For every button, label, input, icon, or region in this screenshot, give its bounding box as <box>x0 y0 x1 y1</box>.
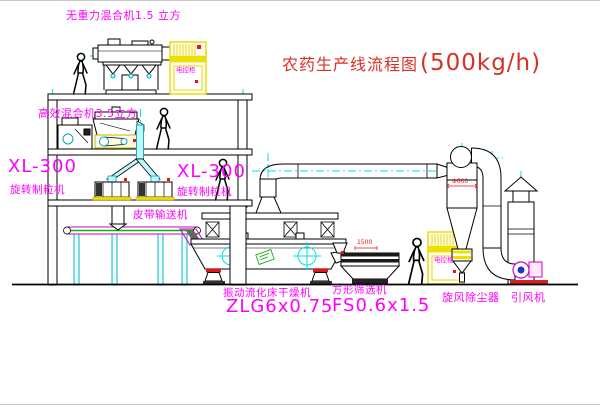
title-text: 农药生产线流程图 <box>282 51 418 75</box>
person-figure-1 <box>74 53 88 94</box>
label-granulator-left-name: 旋转制粒机 <box>10 185 65 196</box>
label-cyclone: 旋风除尘器 <box>442 292 500 303</box>
gravity-free-mixer-drawing <box>93 39 172 94</box>
label-granulator-mid-model: XL-300 <box>177 163 246 181</box>
discharge-chute <box>110 206 126 230</box>
label-belt-conveyor: 皮带输送机 <box>133 210 188 221</box>
label-dryer-model: ZLG6x0.75 <box>226 298 334 316</box>
person-figure-4 <box>409 238 424 283</box>
diagram-title: 农药生产线流程图 (500kg/h) <box>282 50 541 76</box>
label-sieve-model: FS0.6x1.5 <box>332 297 430 315</box>
building-column-front <box>230 206 246 285</box>
belt-conveyor-drawing <box>64 227 201 285</box>
rotary-granulator-left <box>93 176 131 200</box>
label-sieve-name: 方形筛选机 <box>332 285 387 296</box>
label-cabinet-1: 电控柜 <box>176 67 196 74</box>
label-granulator-left-model: XL-300 <box>8 158 77 176</box>
dimension-sieve-length: 1500 <box>357 240 372 246</box>
process-flow-diagram: 农药生产线流程图 (500kg/h) 无重力混合机1.5 立方 高效混合机3.5… <box>0 0 600 405</box>
title-capacity: (500kg/h) <box>420 50 541 76</box>
dimension-cyclone-diameter: Φ600 <box>452 179 468 185</box>
induced-draft-fan-drawing <box>510 262 548 285</box>
square-sieve-drawing <box>333 243 399 285</box>
feed-pipe <box>137 121 145 161</box>
fluid-bed-dryer-drawing <box>191 213 348 284</box>
label-top-mixer: 无重力混合机1.5 立方 <box>66 10 181 21</box>
label-cabinet-2: 电控柜 <box>434 257 454 264</box>
person-figure-2 <box>157 108 171 149</box>
label-fan: 引风机 <box>511 292 546 303</box>
label-granulator-mid-name: 旋转制粒机 <box>177 187 232 198</box>
rotary-granulator-right <box>136 176 174 200</box>
label-floor2-mixer: 高效混合机3.5立方 <box>38 108 138 119</box>
